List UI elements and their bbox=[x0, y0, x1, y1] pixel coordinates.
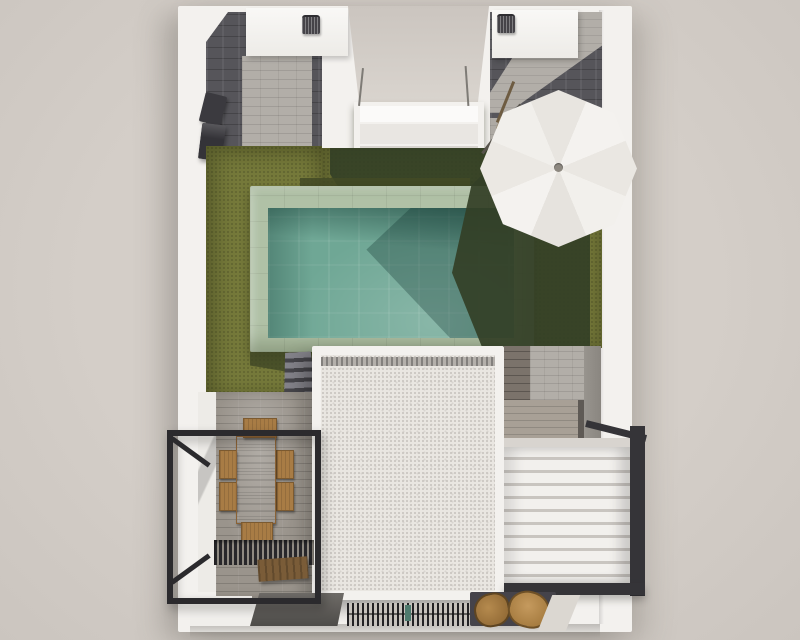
left-courtyard-stone bbox=[242, 56, 312, 152]
balcony-top-face bbox=[360, 106, 478, 122]
right-paving bbox=[530, 346, 584, 400]
pool-steps bbox=[282, 351, 316, 395]
balcony-interior bbox=[360, 124, 478, 144]
pergola-edge bbox=[504, 438, 630, 447]
bbq-grill-left-icon bbox=[302, 15, 320, 34]
pergola-frame-right bbox=[630, 426, 645, 596]
side-plank-strip bbox=[504, 346, 530, 400]
railing-frame bbox=[167, 430, 321, 604]
villa-top-view-render bbox=[0, 0, 800, 640]
vent-teal-detail bbox=[405, 605, 411, 621]
louvered-pergola-slats bbox=[504, 447, 630, 583]
main-roof-gray-band bbox=[321, 357, 495, 366]
parasol-hub bbox=[554, 163, 563, 172]
main-roof-gravel bbox=[321, 355, 495, 591]
street-gap bbox=[345, 6, 492, 108]
bbq-grill-right-icon bbox=[497, 14, 515, 33]
rooftop-box-left bbox=[246, 8, 348, 56]
